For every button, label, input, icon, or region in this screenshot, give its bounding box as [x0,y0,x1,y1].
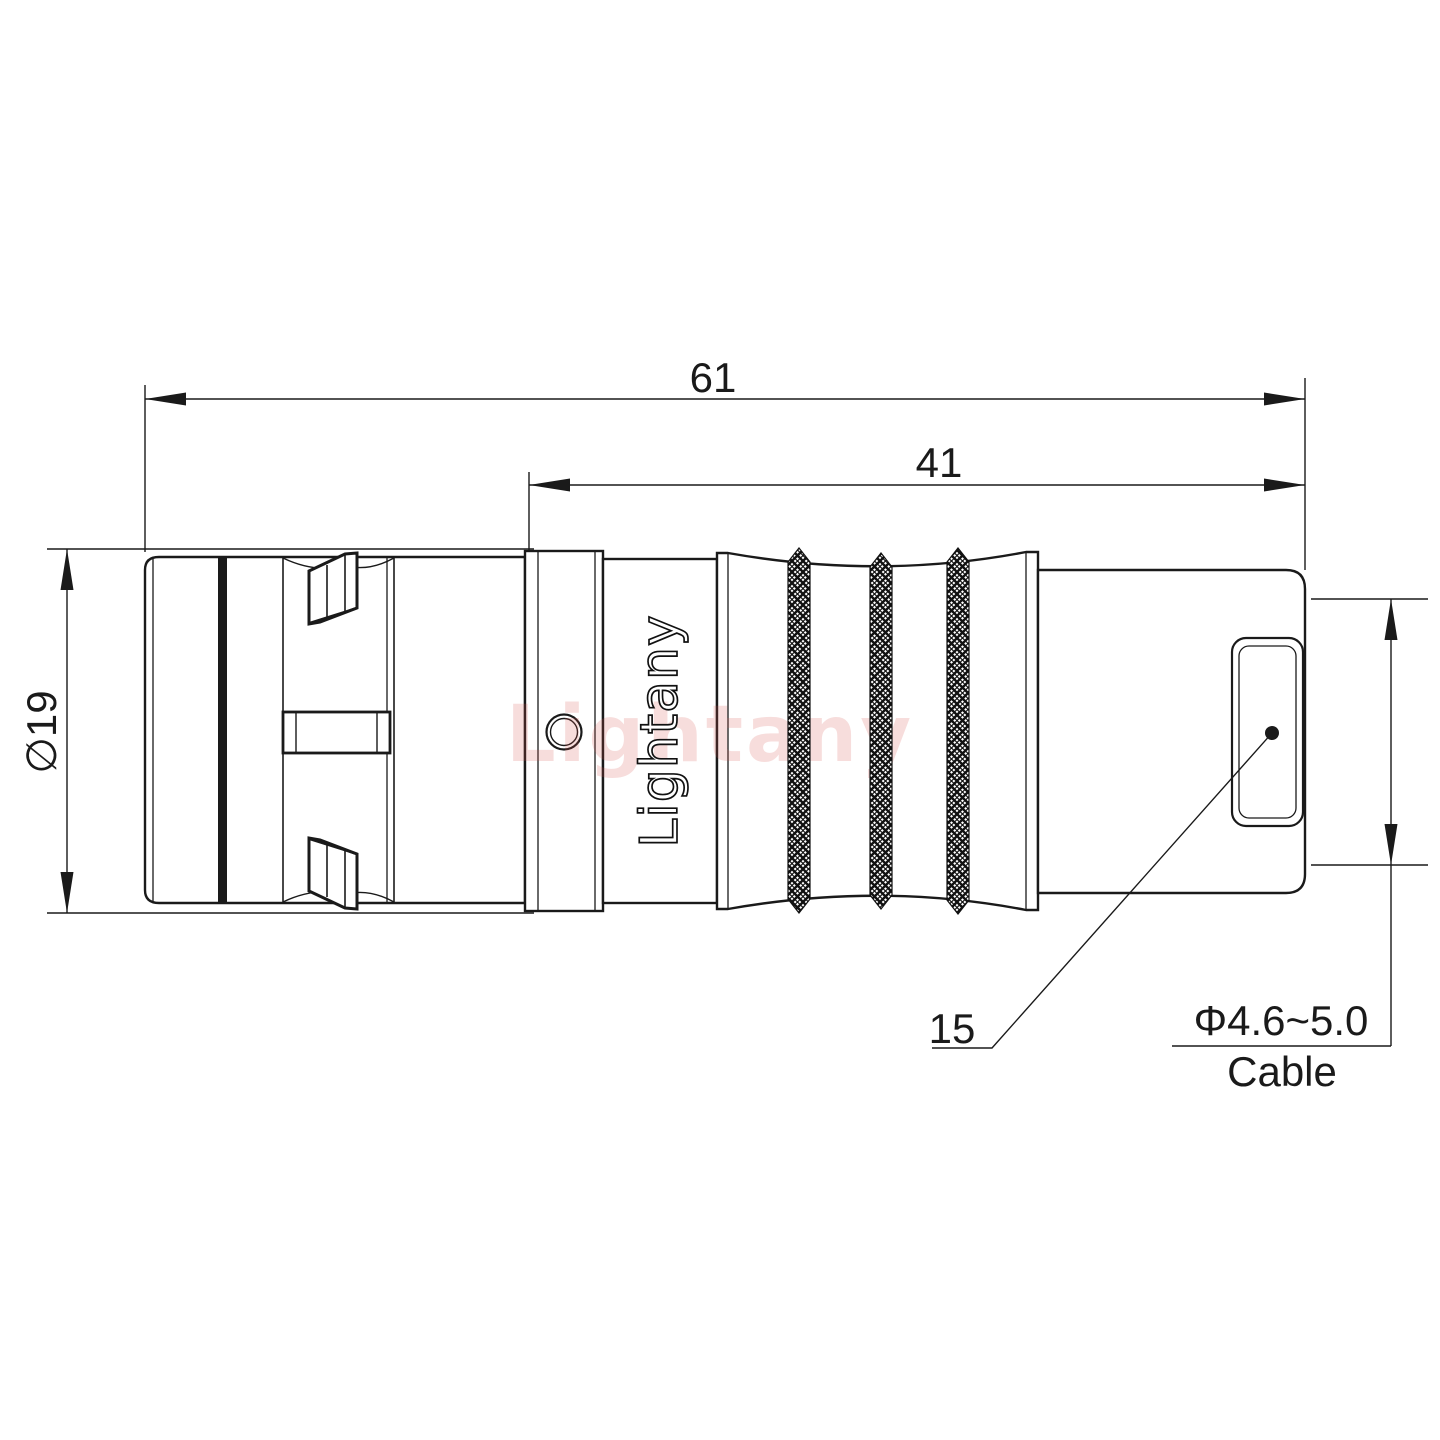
dimension-overall-length [145,378,1305,570]
label-cable-diameter: Φ4.6~5.0 [1194,997,1369,1044]
arrowhead-right-icon [1264,393,1305,406]
label-rear-length: 41 [916,439,963,486]
label-overall-length: 61 [690,354,737,401]
knurled-band-2 [870,553,892,909]
arrowhead-left-icon [529,479,570,492]
cable-boot [1038,570,1305,893]
arrowhead-up-icon [61,549,74,590]
leader-dot [1265,726,1279,740]
arrowhead-down-icon [1385,824,1398,865]
label-cable-word: Cable [1227,1048,1337,1095]
watermark-text: Lightany [506,690,914,780]
drawing-canvas: Lightany Lightany 61 41 ∅19 15 Φ4.6~5.0 … [0,0,1440,1440]
front-shell-black-band [218,557,227,903]
arrowhead-left-icon [145,393,186,406]
arrowhead-up-icon [1385,599,1398,640]
arrowhead-right-icon [1264,479,1305,492]
label-part-ref: 15 [929,1005,976,1052]
engraved-logo-text: Lightany [630,614,690,847]
knurled-band-1 [788,548,810,913]
connector-technical-drawing: Lightany Lightany 61 41 ∅19 15 Φ4.6~5.0 … [0,0,1440,1440]
label-shell-diameter: ∅19 [18,690,65,773]
knurled-band-3 [947,548,969,914]
arrowhead-down-icon [61,872,74,913]
latch-slot [283,712,390,753]
